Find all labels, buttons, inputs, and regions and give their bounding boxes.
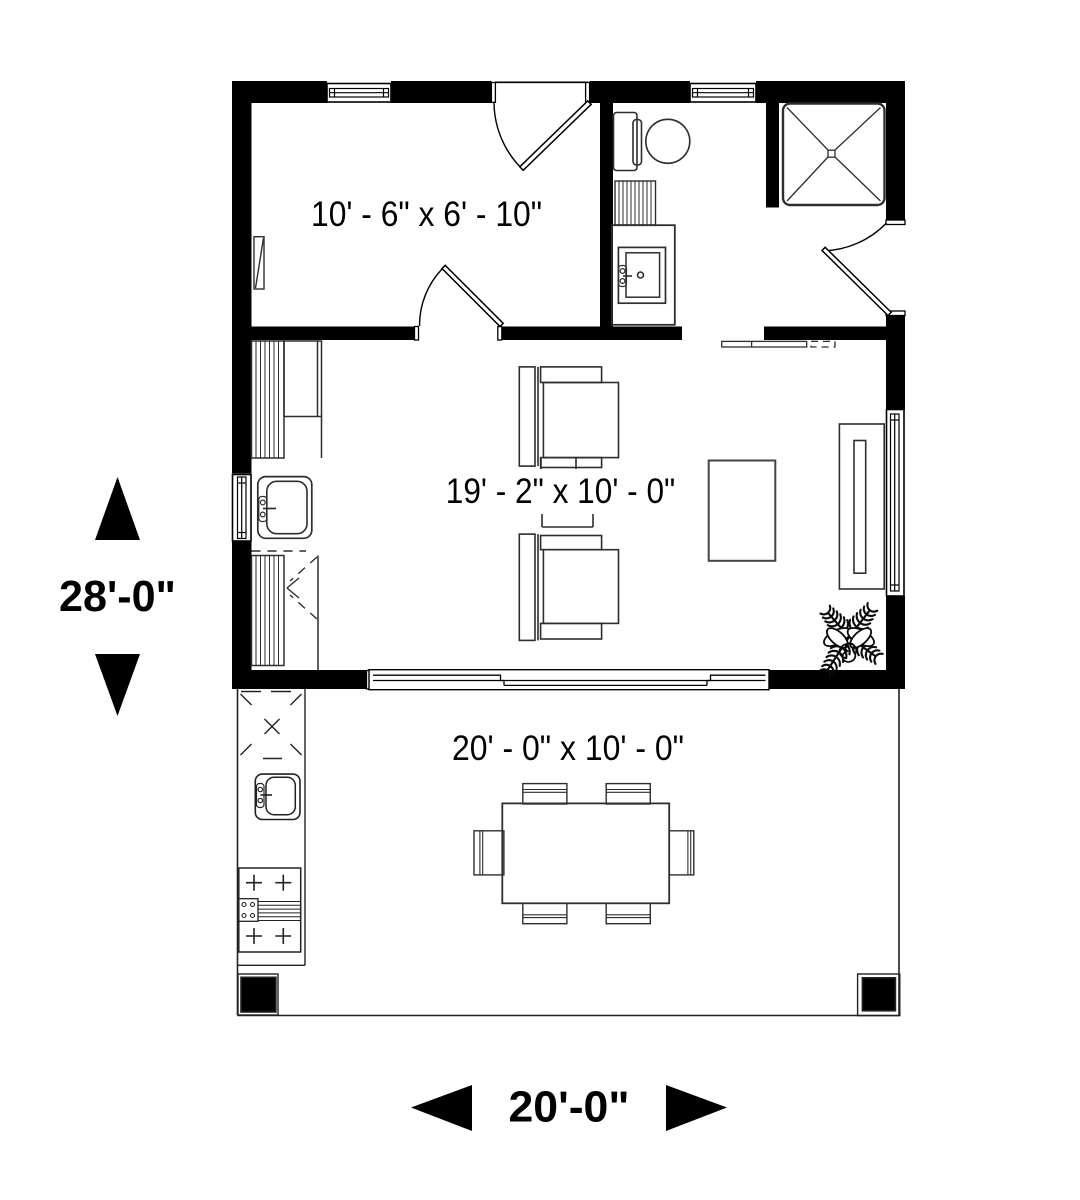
svg-text:19' - 2" x 10' - 0": 19' - 2" x 10' - 0" bbox=[446, 472, 676, 511]
svg-text:28'-0": 28'-0" bbox=[59, 572, 176, 621]
svg-text:10' - 6" x 6' - 10": 10' - 6" x 6' - 10" bbox=[311, 195, 542, 234]
svg-text:20'-0": 20'-0" bbox=[509, 1083, 630, 1132]
svg-text:20' - 0" x 10' - 0": 20' - 0" x 10' - 0" bbox=[452, 729, 684, 768]
